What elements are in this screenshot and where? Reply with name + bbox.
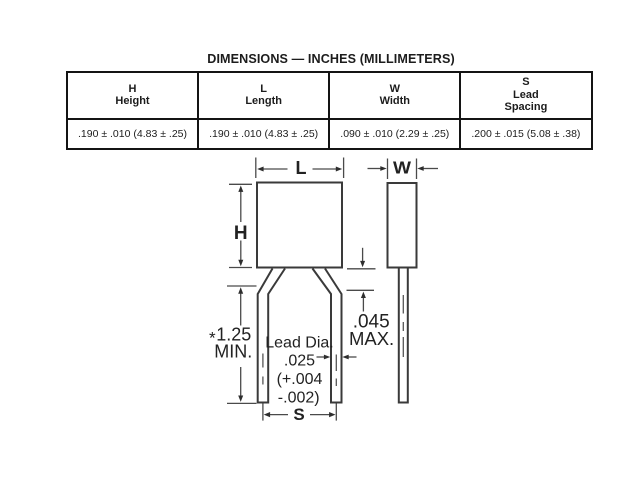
svg-text:(+.004: (+.004 [277, 371, 323, 388]
svg-text:MIN.: MIN. [214, 342, 252, 362]
svg-text:H: H [234, 223, 248, 244]
svg-text:W: W [393, 158, 412, 178]
svg-text:L: L [296, 158, 307, 178]
svg-text:Lead Dia.: Lead Dia. [265, 334, 334, 351]
svg-text:S: S [293, 405, 304, 424]
svg-text:MAX.: MAX. [349, 328, 394, 349]
svg-text:.025: .025 [284, 352, 315, 369]
